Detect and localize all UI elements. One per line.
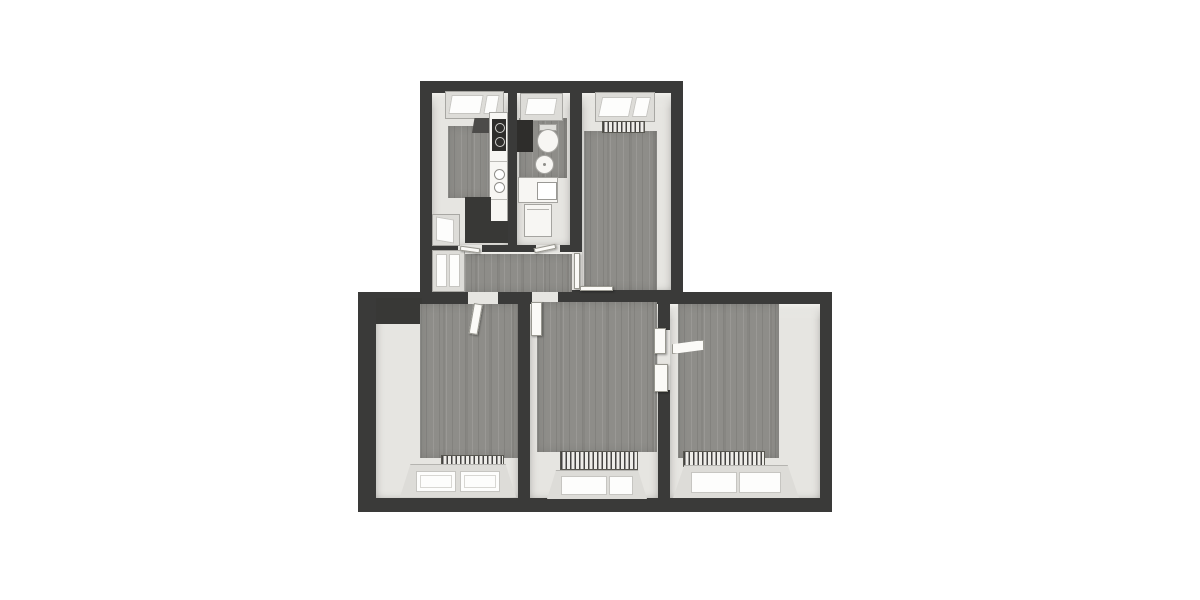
- top-right-room-radiator: [602, 121, 645, 133]
- top-right-room-wood-floor: [584, 131, 657, 290]
- counter-divider: [490, 161, 507, 162]
- bathroom-duct: [517, 120, 533, 152]
- bottom-right-window-pane: [691, 472, 737, 493]
- bottom-middle-door-leaf: [531, 302, 542, 336]
- bathroom-vanity: [518, 177, 558, 203]
- bottom-right-radiator: [683, 451, 765, 467]
- bottom-left-masonry-block: [376, 298, 422, 324]
- hallway-west-window-pane-2: [449, 254, 460, 287]
- top-right-room-door-leaf: [574, 253, 580, 289]
- top-right-room-north-window: [596, 93, 654, 121]
- bathroom-north-window-pane: [525, 98, 558, 115]
- washbasin: [535, 155, 554, 174]
- hallway-west-window: [433, 251, 464, 291]
- top-right-room-window-pane: [598, 97, 633, 117]
- bottom-left-window-pane-2: [460, 471, 500, 492]
- connecting-door-jamb-upper: [654, 328, 666, 354]
- washing-machine: [524, 204, 552, 237]
- kitchen-sink-bowl: [494, 169, 505, 180]
- kitchen-masonry-block-lower: [465, 221, 508, 243]
- vanity-basin: [537, 182, 557, 200]
- bottom-middle-window-pane: [561, 476, 607, 495]
- kitchen-north-window-pane: [448, 95, 483, 114]
- floor-plan-canvas: [0, 0, 1200, 600]
- bottom-left-window-pane: [416, 471, 456, 492]
- top-right-room-threshold: [580, 286, 613, 291]
- top-right-room-window-pane-2: [632, 97, 651, 117]
- bottom-middle-window-pane-2: [609, 476, 633, 495]
- bottom-left-window-inner-frame-2: [464, 475, 496, 488]
- kitchen-west-window: [433, 215, 459, 245]
- bottom-right-window-pane-2: [739, 472, 781, 493]
- cooktop-burner-2: [495, 137, 505, 147]
- bottom-middle-radiator: [560, 451, 638, 470]
- toilet-bowl: [537, 129, 559, 153]
- washing-machine-lid-line: [527, 209, 549, 210]
- kitchen-wood-floor: [448, 126, 489, 198]
- bottom-middle-south-window: [547, 470, 647, 499]
- kitchen-counter-run: [489, 112, 508, 238]
- kitchen-sink-bowl-2: [494, 182, 505, 193]
- hallway-wood-floor: [452, 254, 572, 292]
- bottom-left-south-window: [400, 464, 516, 497]
- counter-divider-2: [490, 199, 507, 200]
- washbasin-drain: [543, 163, 546, 166]
- bottom-right-south-window: [673, 465, 799, 498]
- connecting-door-jamb-lower: [654, 364, 668, 392]
- bottom-middle-wood-floor: [537, 302, 657, 452]
- bathroom-north-window: [521, 94, 562, 120]
- cooktop-burner: [495, 123, 505, 133]
- bottom-right-wood-floor: [678, 304, 779, 458]
- hallway-west-window-pane: [436, 254, 447, 287]
- kitchen-west-window-pane: [436, 216, 454, 243]
- bottom-left-window-inner-frame: [420, 475, 452, 488]
- cooktop: [492, 119, 506, 151]
